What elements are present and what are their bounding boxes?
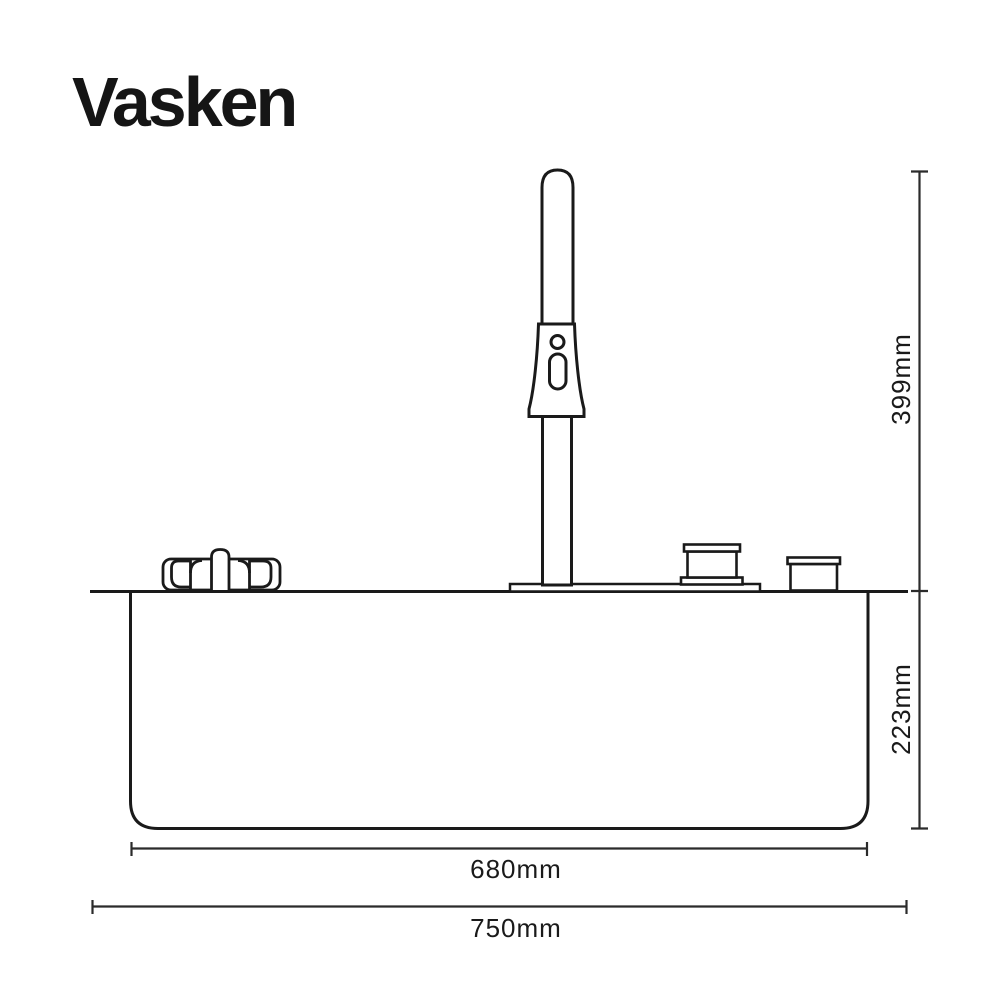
soap-dispenser-knob — [681, 545, 743, 585]
dim-label-faucet-height: 399mm — [888, 333, 914, 425]
control-arch-button — [212, 550, 230, 591]
faucet-outline — [529, 170, 584, 585]
faucet-stem — [543, 410, 572, 585]
faucet-spout — [542, 170, 573, 324]
sink-basin-outline — [131, 591, 869, 829]
soap-dispenser-body — [688, 552, 737, 578]
dim-label-overall-width: 750mm — [416, 915, 616, 941]
sink-basin — [90, 591, 908, 829]
faucet-indicator-dot — [551, 336, 564, 349]
aux-knob-body — [791, 564, 838, 591]
control-button-panel — [163, 550, 280, 591]
dim-label-basin-depth: 223mm — [888, 663, 914, 755]
soap-dispenser-lip — [684, 545, 740, 552]
aux-knob-lip — [788, 558, 841, 565]
sink-side-elevation-svg — [0, 0, 1000, 1000]
diagram-canvas: Vasken — [0, 0, 1000, 1000]
dim-label-basin-width: 680mm — [416, 856, 616, 882]
faucet-indicator-slot — [550, 354, 567, 389]
aux-control-knob — [788, 558, 841, 591]
dimension-line-overall-width — [93, 900, 907, 914]
